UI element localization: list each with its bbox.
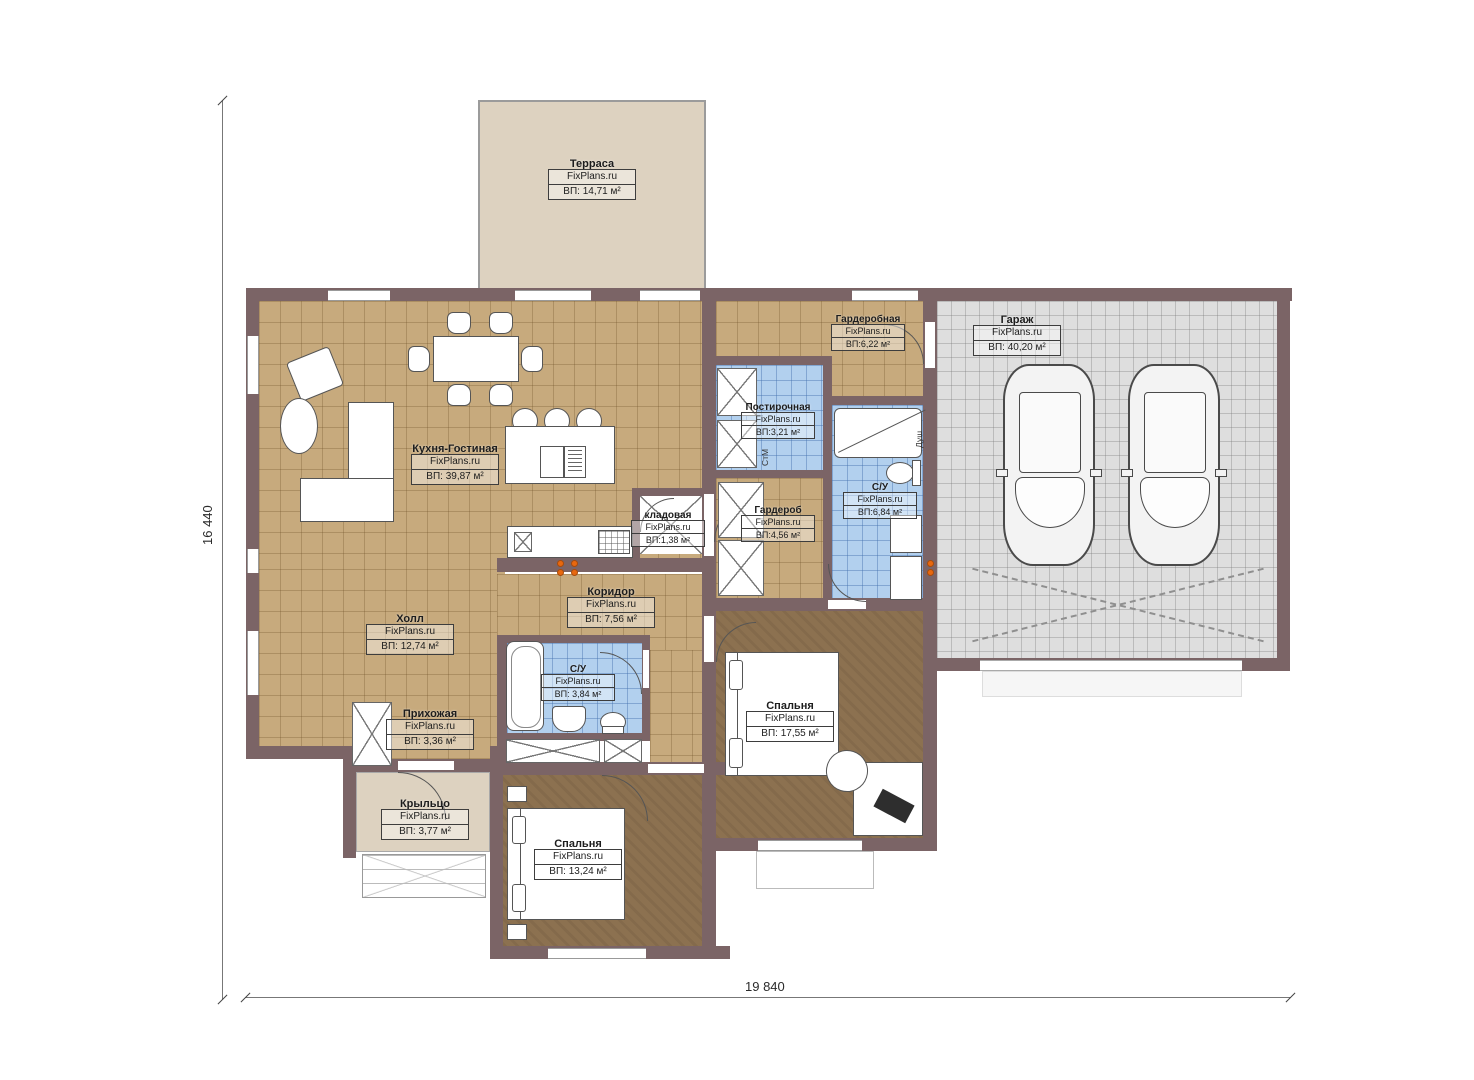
car-mirror <box>1215 469 1227 477</box>
floor-plan: СтМ Душ Терраса FixPlans.ru ВП: 14,71 <box>0 0 1474 1080</box>
wall <box>1277 288 1290 671</box>
door-opening <box>398 761 454 770</box>
dining-chair <box>447 384 471 406</box>
window-pad <box>756 851 874 889</box>
brand-label: FixPlans.ru <box>541 674 615 688</box>
brand-label: FixPlans.ru <box>973 325 1061 341</box>
room-area: ВП:4,56 м² <box>741 528 815 542</box>
door-opening <box>704 494 714 556</box>
brand-label: FixPlans.ru <box>366 624 454 640</box>
window <box>328 290 390 301</box>
room-area: ВП: 12,74 м² <box>366 639 454 655</box>
window <box>247 549 259 573</box>
door-opening <box>704 616 714 662</box>
nightstand <box>507 786 527 802</box>
burner-dot <box>571 560 578 567</box>
room-area: ВП:6,84 м² <box>843 505 917 519</box>
brand-label: FixPlans.ru <box>386 719 474 735</box>
door-opening <box>648 764 704 773</box>
dishwasher <box>564 446 586 478</box>
coffee-table <box>280 398 318 454</box>
burner-dot <box>571 569 578 576</box>
door-opening <box>925 322 935 368</box>
room-area: ВП:6,22 м² <box>831 337 905 351</box>
porch-steps <box>362 854 486 898</box>
window <box>548 948 646 959</box>
brand-label: FixPlans.ru <box>831 324 905 338</box>
window <box>852 290 918 301</box>
window <box>640 290 700 301</box>
window <box>247 631 259 695</box>
room-area: ВП: 13,24 м² <box>534 864 622 880</box>
brand-label: FixPlans.ru <box>741 412 815 426</box>
window <box>758 840 862 851</box>
dining-chair <box>489 312 513 334</box>
room-label-bathroom-small: С/У FixPlans.ru ВП: 3,84 м² <box>541 664 615 701</box>
room-label-bedroom-right: Спальня FixPlans.ru ВП: 17,55 м² <box>746 700 834 742</box>
brand-label: FixPlans.ru <box>843 492 917 506</box>
room-label-terrace: Терраса FixPlans.ru ВП: 14,71 м² <box>548 158 636 200</box>
island-sink <box>540 446 564 478</box>
window <box>247 336 259 394</box>
window <box>515 290 591 301</box>
heater-dot <box>927 569 934 576</box>
room-label-walkin-closet: Гардеробная FixPlans.ru ВП:6,22 м² <box>831 314 905 351</box>
bath-cabinet <box>890 515 922 553</box>
wall <box>632 488 710 496</box>
car-mirror <box>1121 469 1133 477</box>
washing-machine-label: СтМ <box>760 449 770 466</box>
room-area: ВП: 40,20 м² <box>973 340 1061 356</box>
toilet <box>886 462 914 484</box>
hall-closet <box>506 739 600 763</box>
wall <box>714 356 825 365</box>
car-mirror <box>996 469 1008 477</box>
room-label-wardrobe: Гардероб FixPlans.ru ВП:4,56 м² <box>741 505 815 542</box>
pillow <box>729 660 743 690</box>
room-area: ВП:3,21 м² <box>741 425 815 439</box>
room-area: ВП: 3,84 м² <box>541 687 615 701</box>
wardrobe-cabinet <box>718 540 764 596</box>
brand-label: FixPlans.ru <box>411 454 499 470</box>
room-label-hall: Холл FixPlans.ru ВП: 12,74 м² <box>366 613 454 655</box>
room-label-bathroom-main: С/У FixPlans.ru ВП:6,84 м² <box>843 482 917 519</box>
brand-label: FixPlans.ru <box>631 520 705 534</box>
sofa <box>300 478 394 522</box>
room-area: ВП:1,38 м² <box>631 533 705 547</box>
brand-label: FixPlans.ru <box>548 169 636 185</box>
heater-dot <box>927 560 934 567</box>
sink <box>552 706 586 732</box>
car-roof <box>1019 392 1081 473</box>
corridor-floor <box>650 650 702 775</box>
dimension-height: 16 440 <box>200 505 215 545</box>
shower-label: Душ <box>914 431 924 448</box>
bath-cabinet <box>890 556 922 600</box>
room-area: ВП: 3,36 м² <box>386 734 474 750</box>
room-area: ВП: 14,71 м² <box>548 184 636 200</box>
brand-label: FixPlans.ru <box>741 515 815 529</box>
room-label-garage: Гараж FixPlans.ru ВП: 40,20 м² <box>973 314 1061 356</box>
brand-label: FixPlans.ru <box>567 597 655 613</box>
room-area: ВП: 3,77 м² <box>381 824 469 840</box>
dimension-width: 19 840 <box>745 979 785 994</box>
door-opening <box>643 650 649 688</box>
stove <box>598 530 630 554</box>
room-label-porch: Крыльцо FixPlans.ru ВП: 3,77 м² <box>381 798 469 840</box>
wall <box>823 396 930 405</box>
pillow <box>512 816 526 844</box>
room-label-entry: Прихожая FixPlans.ru ВП: 3,36 м² <box>386 708 474 750</box>
car-windshield <box>1015 477 1086 529</box>
burner-dot <box>557 569 564 576</box>
wall <box>490 746 503 959</box>
dimension-line-horizontal <box>245 997 1291 998</box>
room-area: ВП: 39,87 м² <box>411 469 499 485</box>
wall <box>714 470 825 478</box>
pillow <box>512 884 526 912</box>
dining-chair <box>489 384 513 406</box>
car <box>1003 364 1095 566</box>
room-label-corridor: Коридор FixPlans.ru ВП: 7,56 м² <box>567 586 655 628</box>
dining-chair <box>447 312 471 334</box>
garage-apron <box>982 671 1242 697</box>
pillow <box>729 738 743 768</box>
toilet-tank <box>602 726 624 734</box>
room-label-pantry: кладовая FixPlans.ru ВП:1,38 м² <box>631 510 705 547</box>
brand-label: FixPlans.ru <box>534 849 622 865</box>
room-label-laundry: Постирочная FixPlans.ru ВП:3,21 м² <box>741 402 815 439</box>
wall <box>246 288 1292 301</box>
dining-chair <box>408 346 430 372</box>
room-area: ВП: 17,55 м² <box>746 726 834 742</box>
dining-table <box>433 336 519 382</box>
wall <box>246 746 356 759</box>
burner-dot <box>557 560 564 567</box>
brand-label: FixPlans.ru <box>381 809 469 825</box>
car-windshield <box>1140 477 1211 529</box>
car <box>1128 364 1220 566</box>
wall <box>497 558 716 572</box>
brand-label: FixPlans.ru <box>746 711 834 727</box>
nightstand <box>507 924 527 940</box>
room-label-bedroom-bottom: Спальня FixPlans.ru ВП: 13,24 м² <box>534 838 622 880</box>
hall-closet <box>604 739 642 763</box>
car-roof <box>1144 392 1206 473</box>
car-mirror <box>1090 469 1102 477</box>
dimension-line-vertical <box>222 100 223 1000</box>
room-area: ВП: 7,56 м² <box>567 612 655 628</box>
dining-chair <box>521 346 543 372</box>
bathtub-inner <box>511 646 541 728</box>
room-label-kitchen-living: Кухня-Гостиная FixPlans.ru ВП: 39,87 м² <box>411 443 499 485</box>
counter-sink <box>514 532 532 552</box>
garage-door-opening <box>980 660 1242 671</box>
